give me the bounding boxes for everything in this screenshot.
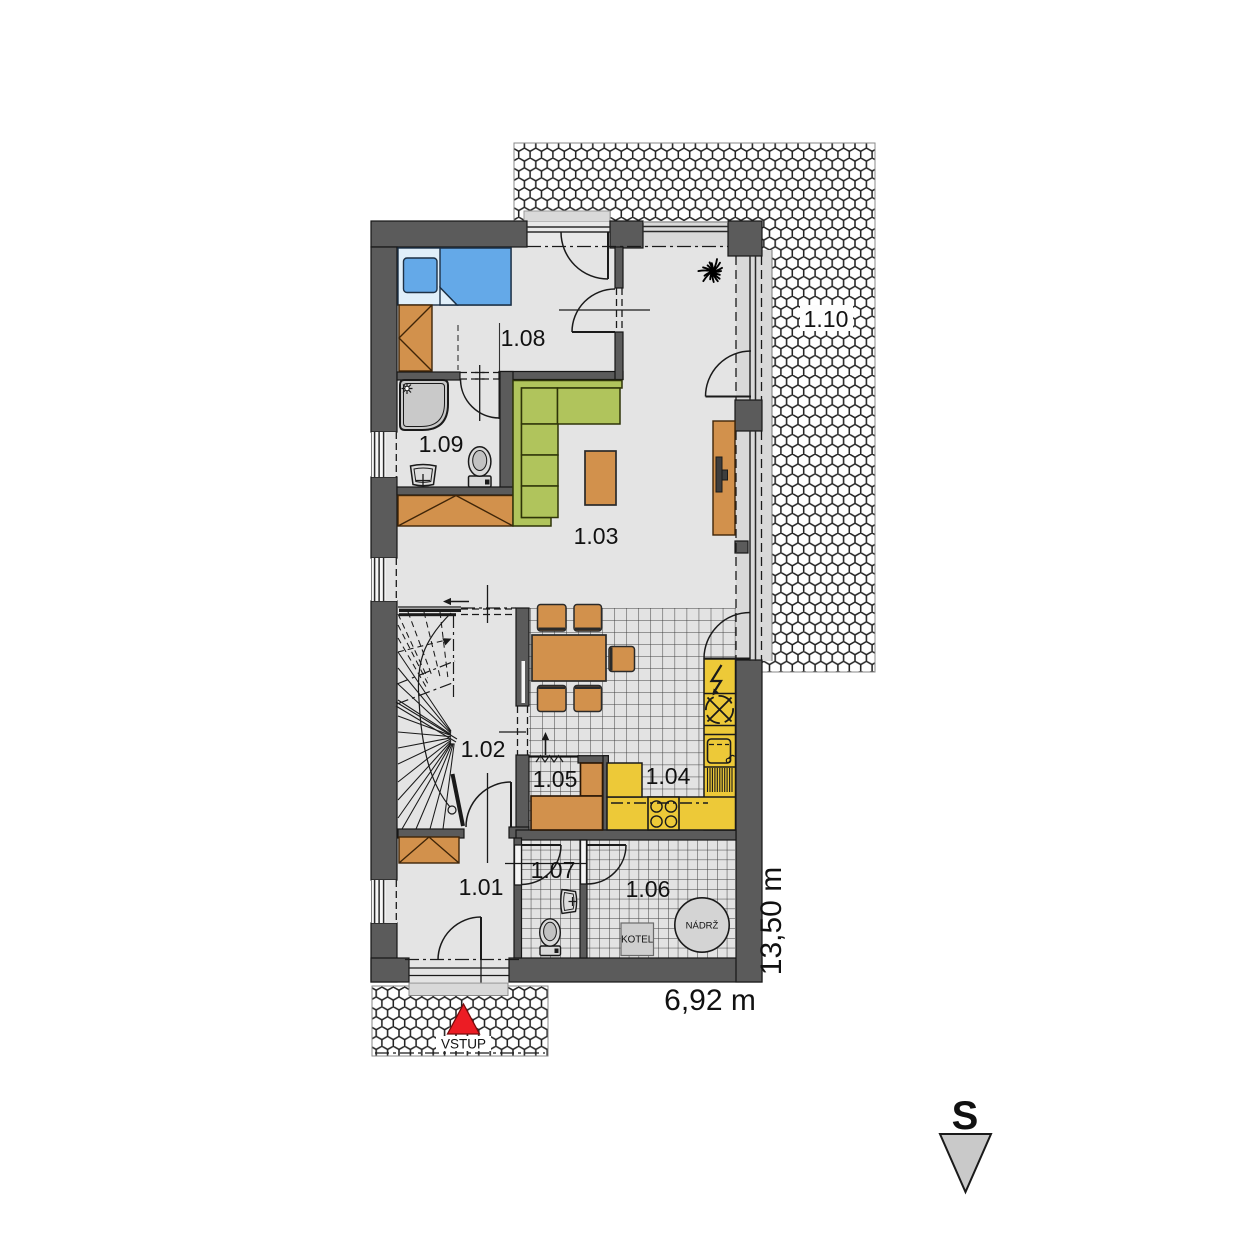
- svg-text:1.05: 1.05: [533, 766, 578, 792]
- svg-text:1.06: 1.06: [626, 876, 671, 902]
- svg-text:1.01: 1.01: [459, 874, 504, 900]
- svg-text:NÁDRŽ: NÁDRŽ: [686, 921, 719, 932]
- svg-text:S: S: [952, 1094, 979, 1138]
- svg-text:1.04: 1.04: [646, 763, 691, 789]
- svg-text:6,92 m: 6,92 m: [664, 984, 756, 1017]
- svg-text:1.07: 1.07: [531, 857, 576, 883]
- svg-text:KOTEL: KOTEL: [621, 935, 654, 946]
- svg-text:VSTUP: VSTUP: [441, 1037, 486, 1052]
- svg-text:1.02: 1.02: [461, 736, 506, 762]
- svg-text:1.10: 1.10: [804, 306, 849, 332]
- svg-text:1.08: 1.08: [501, 325, 546, 351]
- svg-text:1.09: 1.09: [419, 431, 464, 457]
- svg-text:13,50 m: 13,50 m: [755, 867, 788, 975]
- svg-text:1.03: 1.03: [574, 523, 619, 549]
